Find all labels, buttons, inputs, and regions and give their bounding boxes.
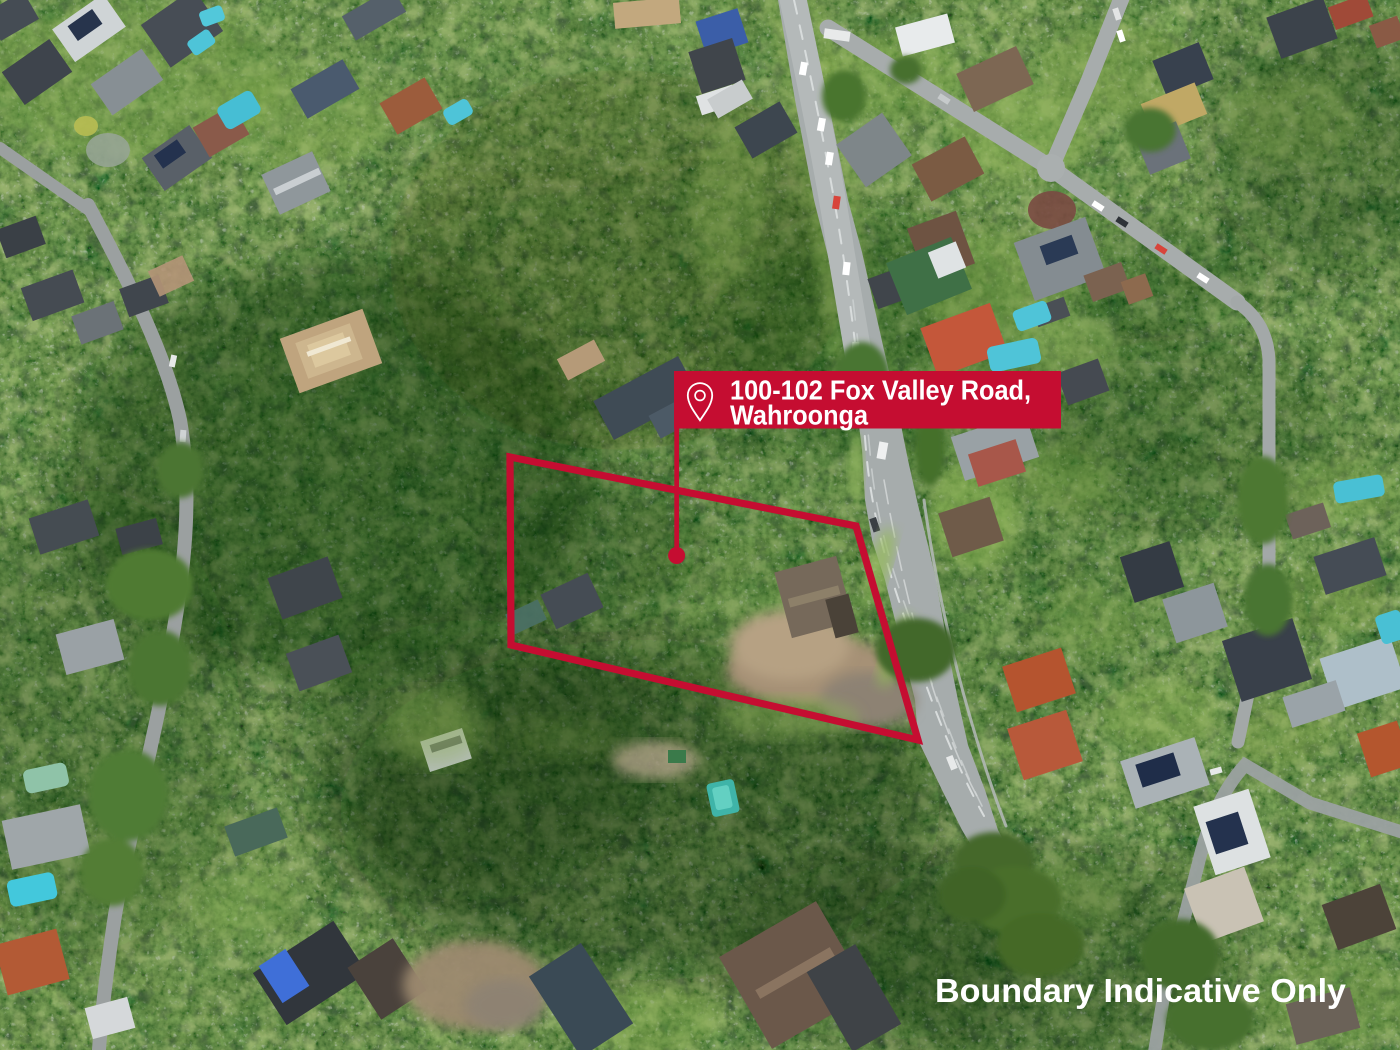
svg-text:Boundary Indicative Only: Boundary Indicative Only (935, 973, 1346, 1010)
svg-text:Wahroonga: Wahroonga (730, 400, 868, 431)
